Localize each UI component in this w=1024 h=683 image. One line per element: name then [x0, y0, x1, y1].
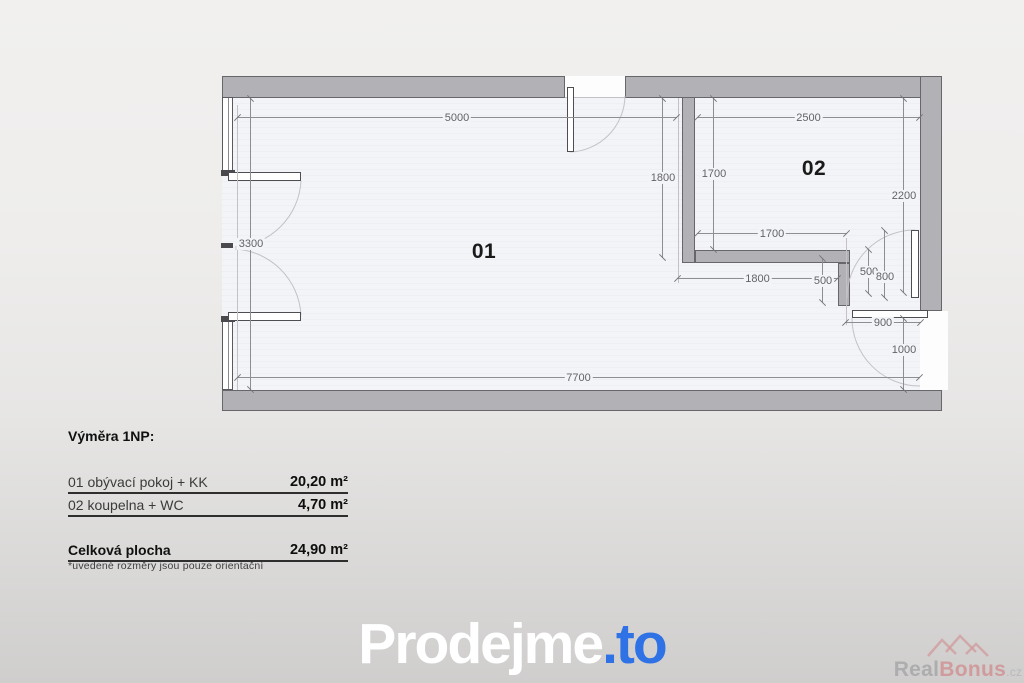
dimension-stub-height: 500	[822, 258, 823, 303]
wall-bathroom-bottom	[695, 250, 850, 263]
window-frame-tick-middle	[221, 243, 233, 248]
dimension-label: 800	[874, 271, 896, 283]
dimension-label: 1800	[649, 172, 677, 184]
window-lower	[222, 321, 233, 390]
floor-plan-page: 5000 2500 1800 1700 2200 1700 1800 500 5…	[0, 0, 1024, 683]
realbonus-text: RealBonus.cz	[893, 658, 1023, 682]
balcony-door-leaf-lower	[228, 312, 301, 321]
dimension-bath-inner-height: 1700	[713, 98, 714, 250]
realbonus-roofs-icon	[926, 630, 990, 658]
bathroom-door-leaf	[911, 230, 919, 298]
dimension-label: 1800	[743, 273, 771, 285]
watermark-real: Real	[894, 658, 940, 681]
watermark-bonus: Bonus	[939, 658, 1006, 681]
top-door-opening	[565, 76, 625, 98]
dimension-top-left-width: 5000	[237, 117, 677, 118]
legend-row-bathroom: 02 koupelna + WC 4,70 m²	[68, 492, 348, 517]
legend-row-value: 20,20 m²	[290, 474, 348, 490]
legend-row-value: 4,70 m²	[298, 497, 348, 513]
dimension-label: 1700	[700, 168, 728, 180]
dimension-bath-door-width: 800	[884, 230, 885, 298]
dimension-left-height: 3300	[250, 98, 251, 390]
dimension-bottom-width: 7700	[237, 377, 920, 378]
prodejme-to-logo: Prodejme.to	[0, 616, 1024, 673]
legend-row-total: Celková plocha 24,90 m²	[68, 537, 348, 562]
wall-bathroom-partition	[682, 97, 695, 263]
wall-top-right	[625, 76, 942, 98]
dimension-label: 900	[872, 317, 894, 329]
dimension-label: 5000	[443, 112, 471, 124]
wall-right	[920, 76, 942, 311]
dimension-bath-door-clear: 500	[868, 249, 869, 294]
wall-top-left	[222, 76, 565, 98]
extension-line-partition	[678, 98, 679, 283]
balcony-door-leaf-upper	[228, 172, 301, 181]
room-label-bathroom: 02	[790, 157, 838, 181]
dimension-label: 1000	[890, 344, 918, 356]
dimension-bath-width: 2500	[697, 117, 920, 118]
dimension-entry-clear: 1000	[903, 318, 904, 390]
room-label-living: 01	[460, 240, 508, 264]
wall-bathroom-stub	[838, 263, 850, 306]
legend-total-value: 24,90 m²	[290, 542, 348, 558]
wall-bottom	[222, 390, 942, 411]
legend-title: Výměra 1NP:	[68, 428, 154, 444]
logo-primary-text: Prodejme	[358, 612, 602, 676]
legend-note: *uvedené rozměry jsou pouze orientační	[68, 560, 264, 572]
watermark-tld: .cz	[1006, 665, 1022, 679]
dimension-label: 7700	[564, 372, 592, 384]
logo-suffix-text: .to	[602, 612, 666, 676]
dimension-label: 2500	[794, 112, 822, 124]
dimension-partition-length: 1800	[662, 98, 663, 258]
legend-row-living: 01 obývací pokoj + KK 20,20 m²	[68, 469, 348, 494]
legend-total-label: Celková plocha	[68, 542, 171, 558]
entry-door-opening	[920, 311, 948, 390]
legend-row-label: 01 obývací pokoj + KK	[68, 474, 208, 490]
dimension-label: 1700	[758, 228, 786, 240]
dimension-entry-door-width: 900	[845, 322, 921, 323]
dimension-bath-inner-width: 1700	[697, 233, 847, 234]
window-upper	[222, 97, 233, 172]
legend-row-label: 02 koupelna + WC	[68, 497, 184, 513]
top-door-leaf	[567, 87, 574, 152]
dimension-label: 2200	[890, 189, 918, 201]
dimension-bath-right-height: 2200	[903, 98, 904, 293]
dimension-label: 3300	[237, 238, 265, 250]
dimension-label: 500	[812, 274, 834, 286]
extension-line-stub	[846, 238, 847, 325]
